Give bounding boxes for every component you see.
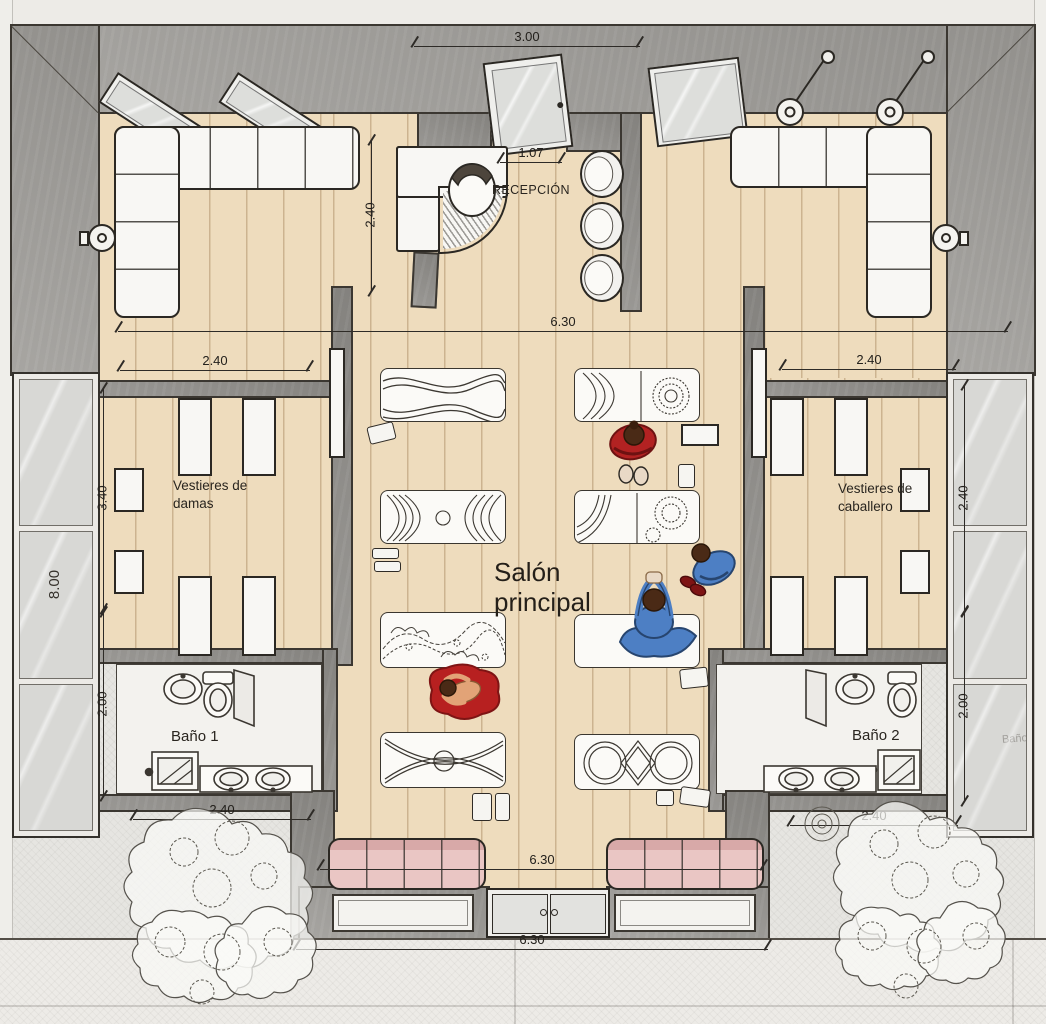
door-handle-icon xyxy=(540,909,547,916)
dim-label: 2.40 xyxy=(955,485,970,510)
yoga-block xyxy=(679,667,709,690)
dressing-door-right xyxy=(751,348,767,458)
wall-right-upper xyxy=(946,24,1036,376)
glass-pane xyxy=(19,684,93,831)
yoga-mat-feather xyxy=(380,490,506,544)
dim-top-entrance-width: 3.00 xyxy=(414,46,640,47)
person-red-standing xyxy=(596,412,668,488)
floor-plan-canvas: Baño xyxy=(0,0,1046,1024)
mat-pattern-waves xyxy=(381,369,506,422)
dressing-bench xyxy=(114,550,144,594)
wall-women-wing-top xyxy=(98,380,352,398)
wall-bath1-right xyxy=(322,648,338,812)
yoga-mat-waves xyxy=(380,368,506,422)
entrance-double-door xyxy=(486,888,610,938)
dim-bath2-depth: 2.00 xyxy=(964,612,965,800)
dim-glass-wall-length: 8.00 xyxy=(46,570,63,599)
dim-hall-width-upper: 6.30 xyxy=(118,331,1008,332)
yoga-mat-cross-eye xyxy=(380,732,506,788)
cubicle-partition xyxy=(242,576,276,656)
mat-pattern-cross-eye xyxy=(381,733,506,788)
yoga-block xyxy=(656,790,674,806)
label-dressing-women: Vestieres de damas xyxy=(173,477,265,512)
dim-label: 6.30 xyxy=(529,852,554,867)
door-leaf-right xyxy=(550,894,606,934)
wall-hall-right xyxy=(743,286,765,666)
mat-pattern-feather xyxy=(381,491,506,544)
wall-hall-left xyxy=(331,286,353,666)
glass-wall-right: Baño xyxy=(946,372,1034,838)
door-glass xyxy=(491,62,566,149)
cubicle-partition xyxy=(242,398,276,476)
glass-wall-left xyxy=(12,372,100,838)
dim-hall-width-lower: 6.30 xyxy=(320,869,764,870)
tub-chair-2 xyxy=(580,202,624,250)
dim-label: 3.40 xyxy=(94,485,109,510)
label-dressing-men: Vestieres de caballero xyxy=(838,480,930,515)
dressing-door-left xyxy=(329,348,345,458)
cubicle-partition xyxy=(178,398,212,476)
dim-label: 2.40 xyxy=(202,353,227,368)
dim-dressing-men-width: 2.40 xyxy=(782,369,956,370)
dim-label: 1.07 xyxy=(518,145,543,160)
glass-pane xyxy=(19,531,93,678)
tub-chair-1 xyxy=(580,150,624,198)
cubicle-partition xyxy=(834,576,868,656)
cubicle-partition xyxy=(770,576,804,656)
cubicle-partition xyxy=(834,398,868,476)
yoga-block xyxy=(472,793,492,821)
wall-left-upper xyxy=(10,24,100,376)
cubicle-partition xyxy=(178,576,212,656)
page-margin-top xyxy=(0,0,1046,24)
wall-shelf xyxy=(681,424,719,446)
dim-reception-opening: 1.07 xyxy=(500,162,562,163)
label-reception: RECEPCIÓN xyxy=(492,182,570,198)
dim-tick xyxy=(786,815,794,827)
glass-pane xyxy=(19,379,93,526)
person-red-mat-lying xyxy=(418,660,506,726)
dim-label: 3.00 xyxy=(514,29,539,44)
yoga-block xyxy=(372,548,399,559)
dim-dressing-women-width: 2.40 xyxy=(120,370,310,371)
wall-desk-stub xyxy=(411,251,440,308)
dim-label: 2.40 xyxy=(856,352,881,367)
dim-label: 6.30 xyxy=(519,932,544,947)
label-bath-2: Baño 2 xyxy=(852,726,900,746)
dim-bath1-depth: 2.00 xyxy=(103,612,104,795)
label-bath-1: Baño 1 xyxy=(171,727,219,747)
dim-right-wing-depth: 2.40 xyxy=(964,385,965,610)
dim-label: 2.40 xyxy=(362,202,377,227)
reception-entry-door xyxy=(483,53,574,156)
dim-reception-depth: 2.40 xyxy=(371,140,372,290)
yoga-block xyxy=(678,464,695,488)
dim-label: 2.00 xyxy=(94,691,109,716)
bath1-fixtures xyxy=(116,664,322,794)
sofa-pink-right xyxy=(606,838,764,890)
dressing-bench xyxy=(900,550,930,594)
wall-men-wing-top xyxy=(744,380,948,398)
paving-joint xyxy=(514,940,516,1024)
tub-chair-3 xyxy=(580,254,624,302)
entrance-sidelight-right xyxy=(614,894,756,932)
wall-bath1-top xyxy=(98,648,338,664)
sofa-white-left-vertical xyxy=(114,126,180,318)
sofa-white-right-vertical xyxy=(866,126,932,318)
yoga-block xyxy=(495,793,510,821)
dim-label: 6.30 xyxy=(550,314,575,329)
yoga-block xyxy=(374,561,401,572)
tree-plan-icon-left xyxy=(92,792,356,1024)
wall-bath2-top xyxy=(708,648,948,664)
mat-pattern-rings xyxy=(575,735,700,790)
door-handle-icon xyxy=(551,909,558,916)
dim-terrace-width: 6.30 xyxy=(296,949,768,950)
glass-reflection-label: Baño xyxy=(1002,732,1027,746)
cubicle-partition xyxy=(770,398,804,476)
yoga-mat-rings xyxy=(574,734,700,790)
dim-label: 2.00 xyxy=(955,693,970,718)
dressing-bench xyxy=(114,468,144,512)
label-main-hall: Salón principal xyxy=(494,558,614,618)
floor-dressing-women xyxy=(98,378,352,664)
tree-plan-icon-right xyxy=(798,788,1046,1024)
dim-left-wing-depth: 3.40 xyxy=(103,388,104,608)
sconce-icon-right xyxy=(928,216,972,262)
